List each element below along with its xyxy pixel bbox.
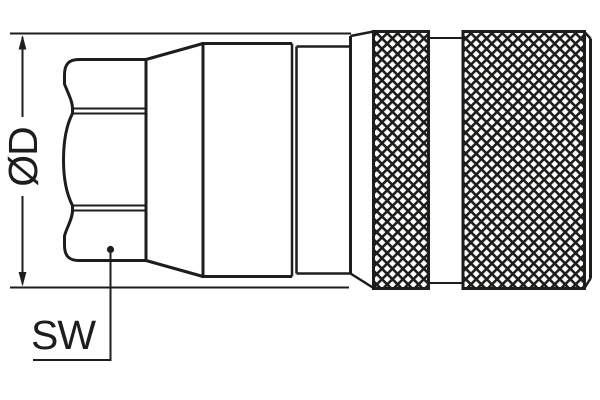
hex-nut-outline [64, 60, 147, 261]
coupling-technical-drawing: ØD [0, 0, 600, 400]
arrowhead-down-icon [19, 272, 27, 287]
cone-top-edge [146, 44, 203, 60]
step-section [297, 47, 351, 274]
knurled-sleeve [351, 32, 591, 289]
diameter-label: ØD [0, 127, 46, 187]
wrench-size-label: SW [31, 312, 96, 358]
knurl-band-front [374, 32, 429, 289]
main-body [202, 44, 293, 277]
sleeve-chamfer-top-left [351, 32, 374, 37]
cone-transition [146, 44, 203, 277]
sleeve-chamfer-bottom-left [351, 274, 374, 289]
wrench-size-callout: SW [31, 246, 114, 360]
cone-bottom-edge [146, 261, 203, 277]
technical-drawing-canvas: ØD [0, 0, 600, 400]
arrowhead-up-icon [19, 35, 27, 50]
knurl-band-rear [463, 32, 585, 289]
diameter-dimension: ØD [0, 34, 351, 288]
hex-nut [64, 60, 147, 261]
